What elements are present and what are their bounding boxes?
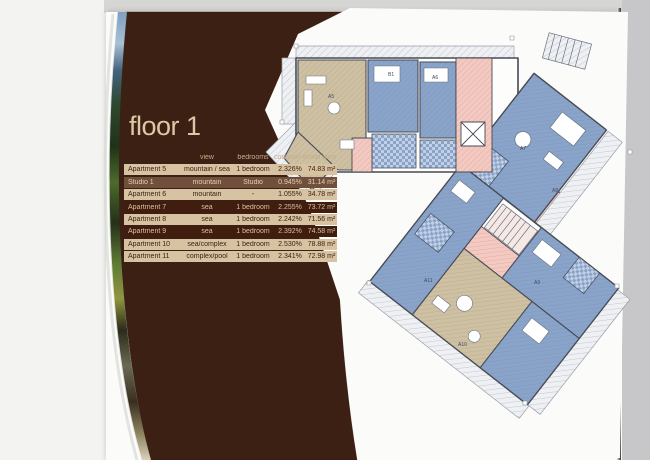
room-label-a8: A8 — [552, 188, 558, 194]
room-label-b1: B1 — [388, 72, 394, 78]
page-title: floor 1 — [129, 111, 201, 142]
table-row: Apartment 6mountain-1.055%34.78 m² — [124, 189, 337, 200]
bathroom-b1 — [372, 134, 416, 168]
scanned-brochure-page: { "page": { "title": "floor 1", "table":… — [0, 0, 650, 460]
room-label-a6: A6 — [432, 75, 438, 81]
table-row: Studio 1mountainStudio0.945%31.14 m² — [124, 177, 337, 188]
header-view: view — [182, 154, 232, 161]
table-row: Apartment 8sea1 bedroom2.242%71.56 m² — [124, 214, 337, 225]
entry-hall — [456, 58, 492, 172]
table-row: Apartment 11complex/pool1 bedroom2.341%7… — [124, 251, 337, 262]
table-header-row: view bedrooms common area total area — [124, 151, 337, 163]
table-row: Apartment 10sea/complex1 bedroom2.530%78… — [124, 239, 337, 250]
elevator-icon — [461, 122, 485, 146]
table-row: Apartment 9sea1 bedroom2.392%74.58 m² — [124, 226, 337, 237]
room-label-a5: A5 — [328, 94, 334, 100]
header-total-area: total area — [306, 154, 337, 161]
bathroom-a6 — [420, 140, 456, 168]
terrace-top — [296, 46, 514, 58]
room-label-a9: A9 — [534, 280, 540, 286]
terrace-left — [282, 58, 296, 124]
corridor-west — [352, 138, 372, 172]
table-row: Apartment 5mountain / sea1 bedroom2.326%… — [124, 164, 337, 175]
room-label-a11: A11 — [424, 278, 433, 284]
header-common-area: common area — [274, 154, 306, 161]
header-bedrooms: bedrooms — [232, 154, 274, 161]
room-label-a10: A10 — [458, 342, 467, 348]
apartments-table: view bedrooms common area total area Apa… — [124, 151, 337, 262]
table-row: Apartment 7sea1 bedroom2.255%73.72 m² — [124, 202, 337, 213]
room-label-a7: A7 — [520, 146, 526, 152]
